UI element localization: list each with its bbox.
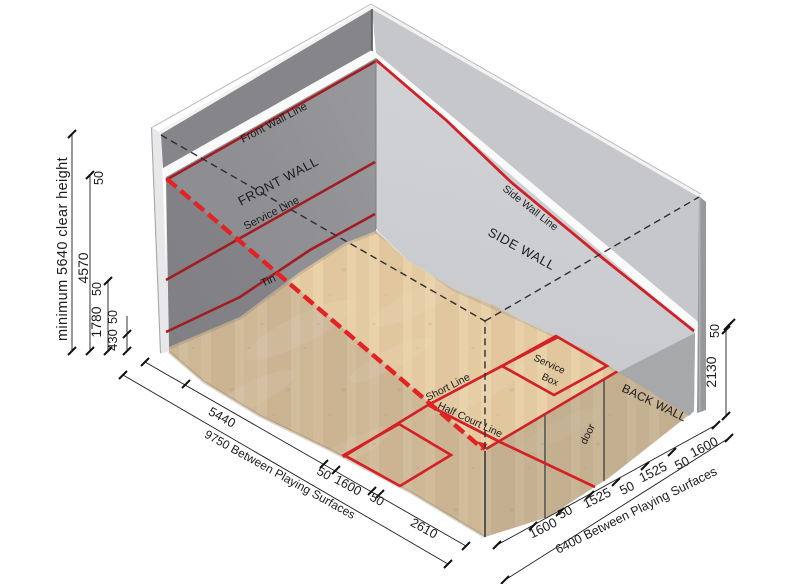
svg-text:50: 50 <box>708 324 722 338</box>
svg-text:minimum 5640 clear height: minimum 5640 clear height <box>55 157 71 341</box>
svg-text:50: 50 <box>92 171 106 185</box>
svg-text:1780: 1780 <box>88 306 104 337</box>
svg-text:50: 50 <box>90 282 104 296</box>
svg-text:4570: 4570 <box>75 252 91 283</box>
svg-text:430: 430 <box>105 329 120 351</box>
svg-text:50: 50 <box>106 310 120 324</box>
svg-text:2130: 2130 <box>703 356 719 387</box>
